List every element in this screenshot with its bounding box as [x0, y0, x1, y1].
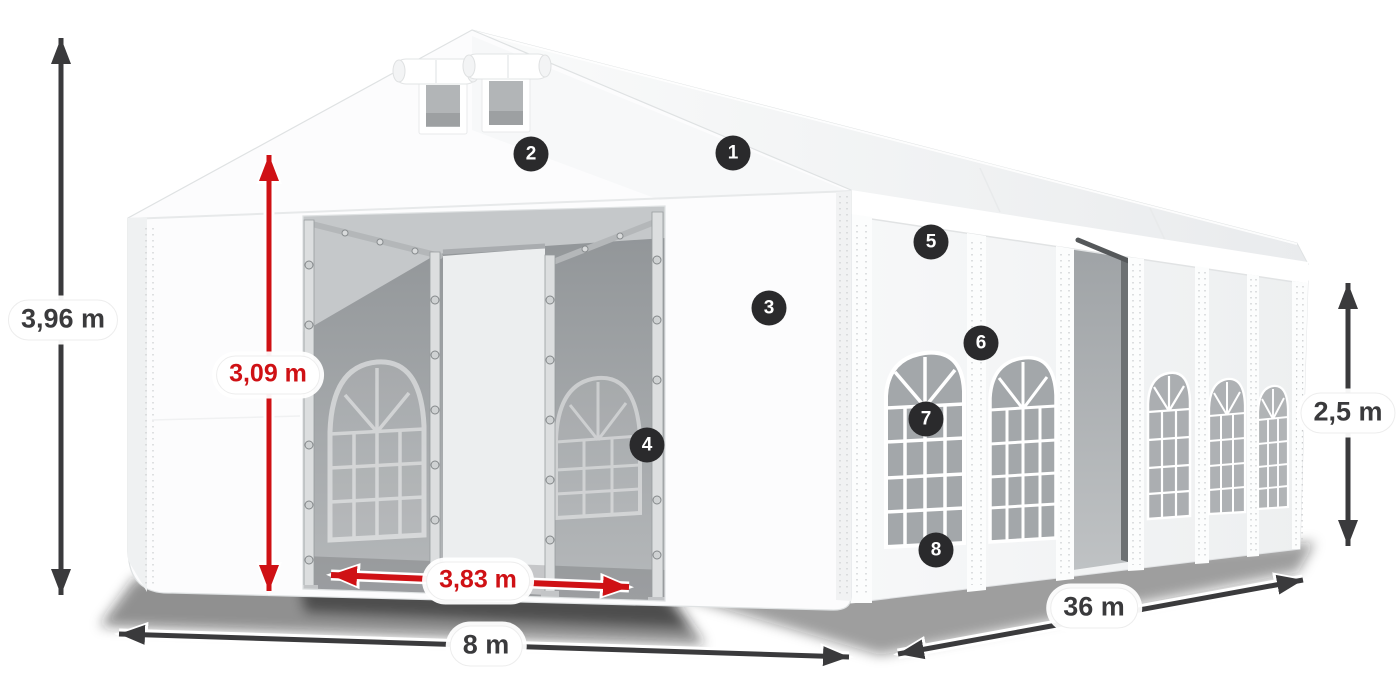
entrance-interior: [300, 206, 666, 603]
dimension-entrance-width: 3,83 m: [426, 562, 530, 601]
inner-door-window-print-left: [330, 362, 424, 540]
tent-illustration: [0, 0, 1400, 700]
dimension-total-height: 3,96 m: [8, 300, 118, 341]
dimension-length: 36 m: [1050, 588, 1138, 629]
dimension-width: 8 m: [450, 626, 523, 667]
dimension-side-height: 2,5 m: [1300, 393, 1395, 434]
inner-door-window-print-right: [556, 378, 640, 518]
callout-badge-1[interactable]: 1: [716, 136, 751, 171]
callout-badge-8[interactable]: 8: [919, 533, 954, 568]
side-window-3: [1148, 373, 1190, 519]
callout-badge-7[interactable]: 7: [909, 402, 944, 437]
side-window-1: [886, 353, 964, 547]
pass-through-gap: [443, 248, 545, 595]
dimension-entrance-height: 3,09 m: [216, 356, 320, 395]
callout-badge-4[interactable]: 4: [630, 428, 665, 463]
side-entrance-opening: [1073, 247, 1128, 570]
callout-badge-6[interactable]: 6: [964, 326, 999, 361]
side-window-2: [990, 358, 1056, 542]
tent-size-diagram: 3,96 m 3,09 m 3,83 m 8 m 36 m 2,5 m 1 2 …: [0, 0, 1400, 700]
callout-badge-2[interactable]: 2: [514, 137, 549, 172]
side-window-5: [1258, 386, 1288, 509]
callout-badge-3[interactable]: 3: [752, 291, 787, 326]
side-window-4: [1209, 379, 1245, 514]
callout-badge-5[interactable]: 5: [914, 225, 949, 260]
